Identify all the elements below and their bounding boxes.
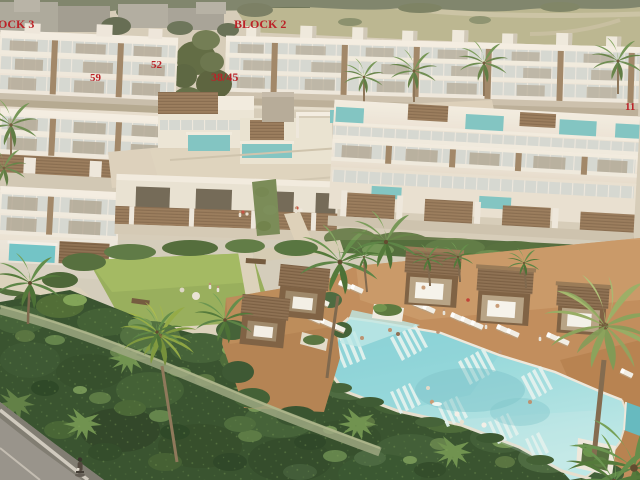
svg-text:59: 59 — [90, 72, 102, 84]
svg-text:11: 11 — [625, 101, 635, 113]
svg-text:BLOCK 2: BLOCK 2 — [234, 17, 286, 31]
svg-text:52: 52 — [151, 59, 163, 71]
svg-text:38/45: 38/45 — [211, 70, 238, 84]
svg-text:BLOCK 3: BLOCK 3 — [0, 17, 34, 31]
